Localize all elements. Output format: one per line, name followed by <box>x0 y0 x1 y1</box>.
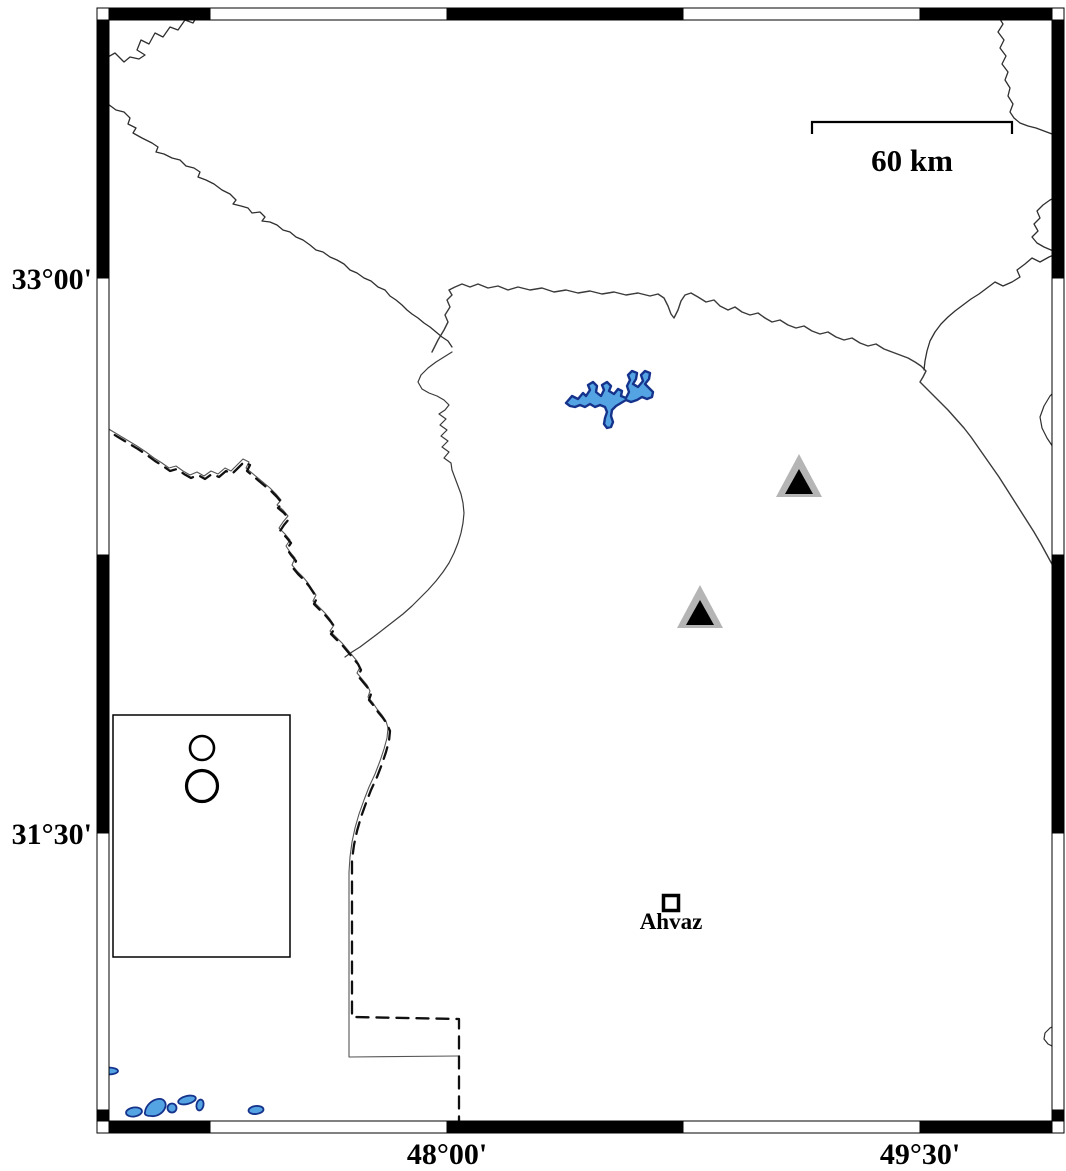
frame-right-band <box>1052 8 1064 1133</box>
lon-label-48-00: 48°00' <box>407 1138 487 1171</box>
lat-label-31-30: 31°30' <box>12 818 92 851</box>
frame-top-band <box>109 8 1052 20</box>
lat-label-33-00: 33°00' <box>12 263 92 296</box>
scale-bar-label: 60 km <box>871 143 953 178</box>
map-canvas: Ahvaz 60 km <box>0 0 1066 1171</box>
frame-bottom-band <box>109 1121 1052 1133</box>
legend-box <box>113 715 290 957</box>
city-label: Ahvaz <box>640 909 703 934</box>
frame-left-band <box>97 8 109 1133</box>
lon-label-49-30: 49°30' <box>880 1138 960 1171</box>
